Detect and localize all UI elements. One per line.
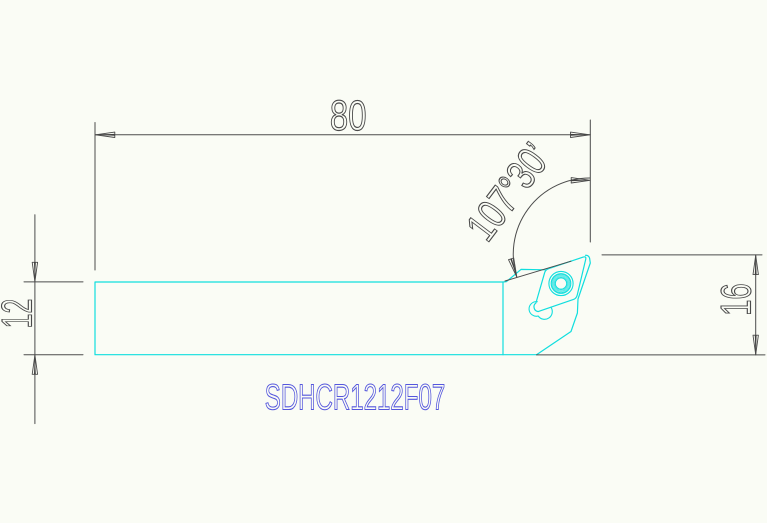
svg-text:SDHCR1212F07: SDHCR1212F07 [265, 378, 445, 418]
svg-text:12: 12 [0, 299, 41, 329]
svg-text:16: 16 [712, 283, 760, 316]
svg-text:80: 80 [330, 92, 367, 140]
